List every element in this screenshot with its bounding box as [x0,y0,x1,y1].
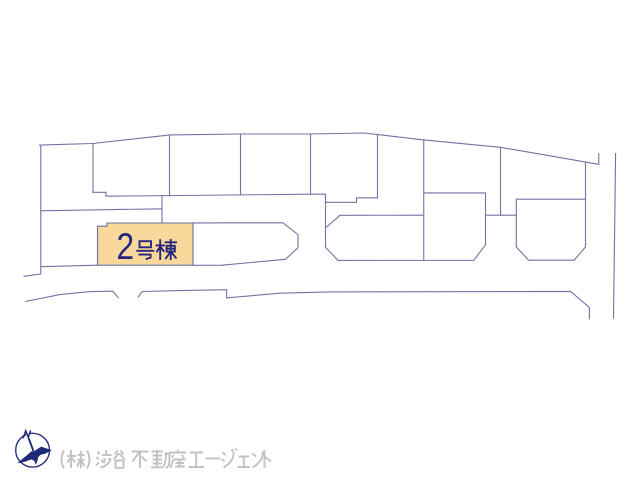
svg-text:2: 2 [117,227,135,268]
